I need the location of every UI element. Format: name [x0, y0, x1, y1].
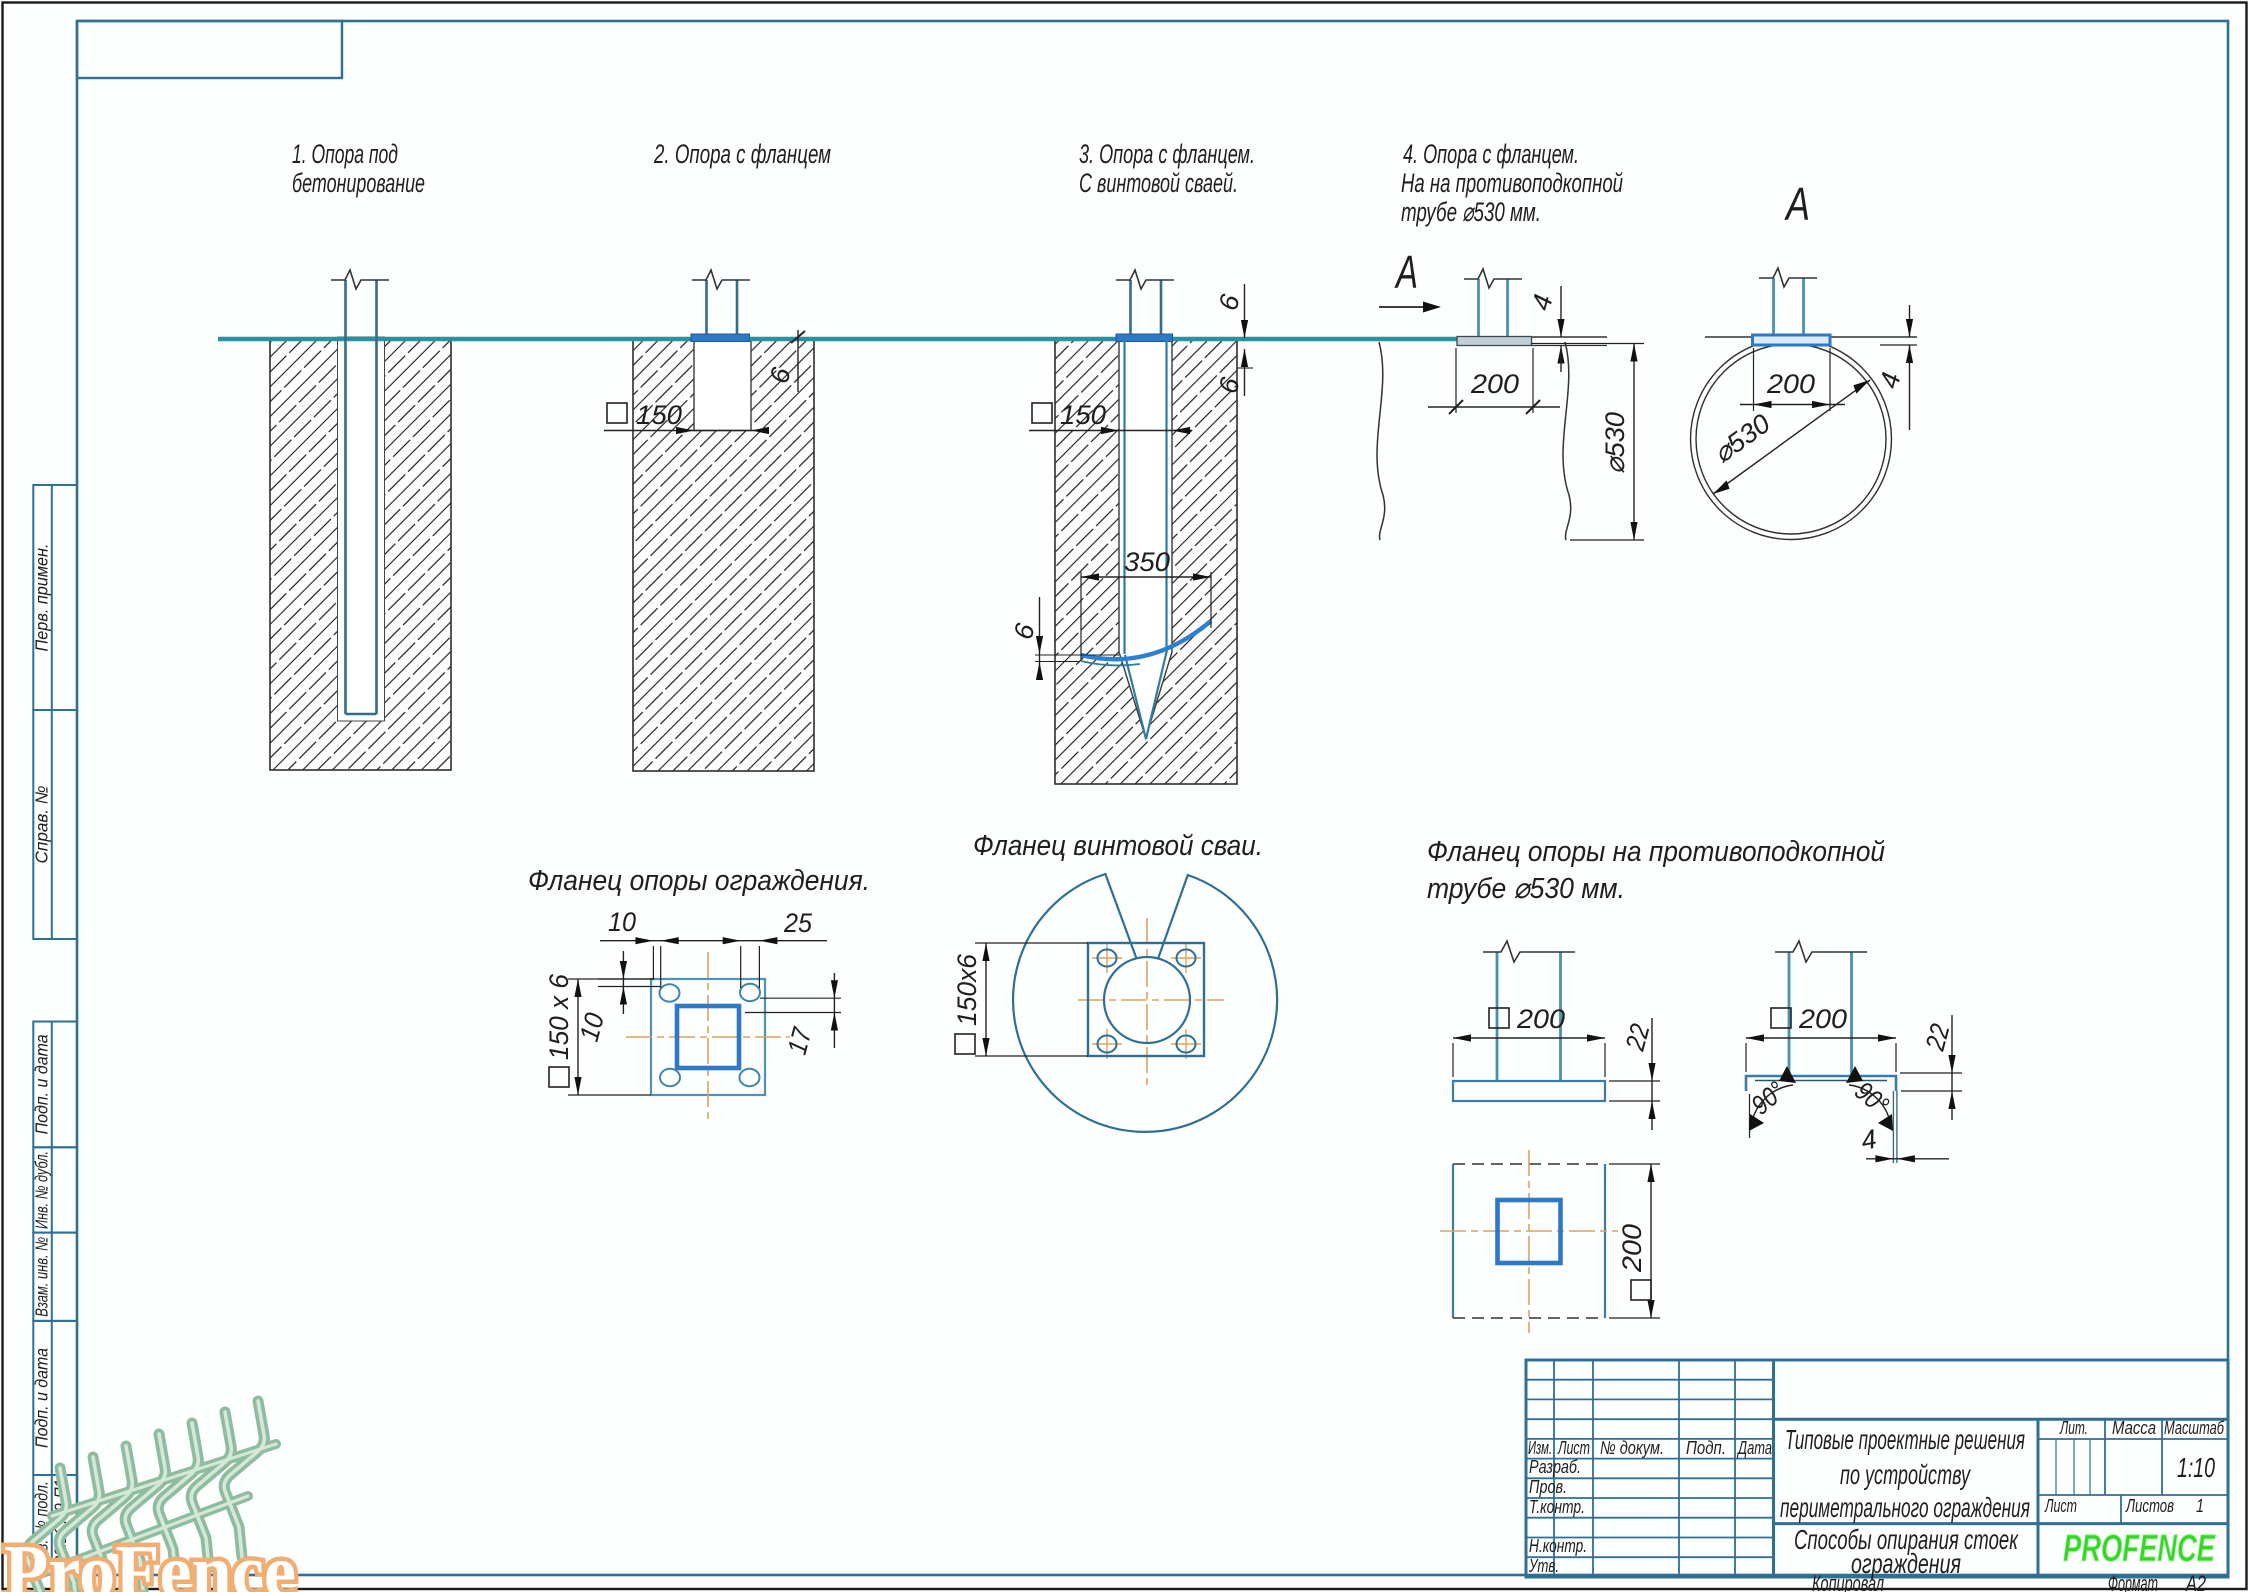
svg-text:ProFence: ProFence — [4, 1530, 296, 1592]
svg-text:трубе ⌀530 мм.: трубе ⌀530 мм. — [1427, 873, 1625, 905]
svg-text:PROFENCE: PROFENCE — [2063, 1528, 2216, 1570]
svg-text:Масса: Масса — [2112, 1417, 2156, 1438]
svg-text:бетонирование: бетонирование — [292, 168, 425, 198]
svg-text:200: 200 — [1516, 1004, 1565, 1034]
svg-text:1: 1 — [2196, 1495, 2204, 1516]
svg-text:периметрального ограждения: периметрального ограждения — [1780, 1492, 2030, 1523]
svg-text:Справ. №: Справ. № — [32, 785, 52, 863]
svg-text:трубе ⌀530 мм.: трубе ⌀530 мм. — [1401, 197, 1541, 227]
svg-text:Подп.: Подп. — [1686, 1437, 1726, 1458]
svg-text:Фланец винтовой сваи.: Фланец винтовой сваи. — [973, 830, 1263, 862]
svg-text:25: 25 — [783, 908, 813, 938]
svg-text:Утв.: Утв. — [1528, 1555, 1559, 1576]
svg-text:Изм.: Изм. — [1528, 1437, 1552, 1458]
svg-text:На на противоподкопной: На на противоподкопной — [1401, 168, 1623, 198]
svg-text:Масштаб: Масштаб — [2164, 1417, 2224, 1438]
svg-text:150: 150 — [636, 400, 682, 430]
svg-text:150х6: 150х6 — [952, 953, 982, 1026]
svg-text:⌀530: ⌀530 — [1600, 412, 1630, 474]
svg-text:Пров.: Пров. — [1529, 1476, 1567, 1497]
svg-text:200: 200 — [1798, 1004, 1847, 1034]
svg-text:Фланец опоры на противоподкопн: Фланец опоры на противоподкопной — [1427, 836, 1885, 868]
svg-text:Типовые проектные решения: Типовые проектные решения — [1785, 1424, 2025, 1455]
svg-text:Подп. и дата: Подп. и дата — [32, 1034, 52, 1134]
svg-text:Т.контр.: Т.контр. — [1529, 1496, 1585, 1517]
svg-text:1. Опора под: 1. Опора под — [292, 139, 398, 169]
svg-text:№ докум.: № докум. — [1600, 1437, 1664, 1458]
svg-text:А: А — [1784, 178, 1810, 230]
svg-text:150: 150 — [1060, 400, 1106, 430]
svg-text:350: 350 — [1124, 547, 1170, 577]
svg-text:по устройству: по устройству — [1840, 1459, 1971, 1490]
svg-text:200: 200 — [1617, 1224, 1647, 1273]
svg-text:А2: А2 — [2185, 1571, 2206, 1592]
svg-text:С винтовой сваей.: С винтовой сваей. — [1079, 168, 1238, 198]
svg-text:200: 200 — [1470, 369, 1519, 399]
svg-text:2. Опора с фланцем: 2. Опора с фланцем — [653, 139, 831, 169]
svg-text:Фланец опоры ограждения.: Фланец опоры ограждения. — [528, 865, 870, 897]
svg-text:Формат: Формат — [2108, 1571, 2158, 1592]
svg-text:Копировал: Копировал — [1812, 1571, 1884, 1592]
svg-text:4. Опора с фланцем.: 4. Опора с фланцем. — [1403, 139, 1579, 169]
svg-text:1:10: 1:10 — [2177, 1452, 2215, 1483]
svg-text:Лит.: Лит. — [2059, 1417, 2088, 1438]
svg-text:Листов: Листов — [2125, 1495, 2174, 1516]
svg-text:Перв. примен.: Перв. примен. — [32, 544, 52, 652]
svg-text:150 х 6: 150 х 6 — [544, 973, 574, 1060]
svg-text:А: А — [1394, 246, 1418, 298]
svg-text:Лист: Лист — [1557, 1437, 1590, 1458]
svg-text:3. Опора с фланцем.: 3. Опора с фланцем. — [1079, 139, 1255, 169]
svg-text:200: 200 — [1766, 369, 1815, 399]
svg-text:10: 10 — [608, 907, 636, 937]
svg-text:Н.контр.: Н.контр. — [1529, 1535, 1587, 1556]
svg-text:Разраб.: Разраб. — [1529, 1456, 1581, 1477]
svg-text:Взам. инв. №: Взам. инв. № — [32, 1237, 52, 1317]
svg-text:Инв. № дубл.: Инв. № дубл. — [32, 1151, 52, 1229]
svg-text:Лист: Лист — [2044, 1495, 2077, 1516]
svg-text:Подп. и дата: Подп. и дата — [32, 1348, 52, 1448]
svg-text:Дата: Дата — [1737, 1437, 1772, 1458]
